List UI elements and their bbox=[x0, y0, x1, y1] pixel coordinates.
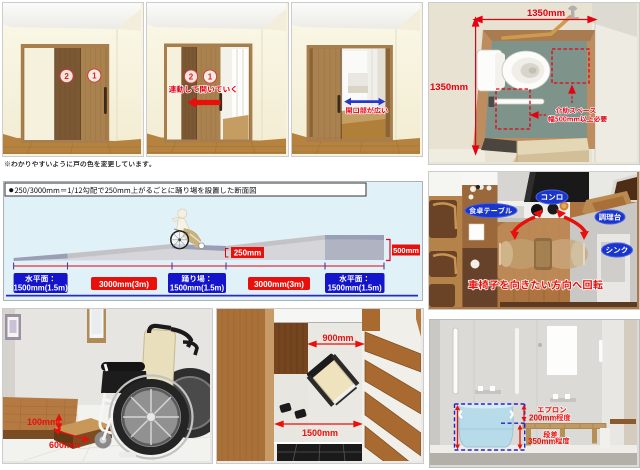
svg-text:2: 2 bbox=[64, 72, 69, 81]
svg-text:1: 1 bbox=[92, 71, 97, 80]
svg-text:1350mm: 1350mm bbox=[527, 8, 565, 19]
svg-text:250mm: 250mm bbox=[234, 249, 262, 258]
svg-text:600mm: 600mm bbox=[49, 440, 80, 450]
svg-text:100mm: 100mm bbox=[27, 417, 58, 427]
svg-text:3000mm(3m): 3000mm(3m) bbox=[254, 280, 304, 289]
svg-text:1500mm(1.5m): 1500mm(1.5m) bbox=[328, 284, 383, 293]
svg-text:350mm: 350mm bbox=[528, 437, 556, 446]
svg-text:200mm: 200mm bbox=[529, 414, 557, 423]
svg-text:1500mm(1.5m): 1500mm(1.5m) bbox=[14, 284, 69, 293]
svg-text:1500mm(1.5m): 1500mm(1.5m) bbox=[170, 284, 225, 293]
svg-text:2: 2 bbox=[189, 72, 194, 81]
svg-text:900mm: 900mm bbox=[322, 333, 353, 343]
svg-text:1350mm: 1350mm bbox=[430, 82, 468, 93]
svg-text:500mm: 500mm bbox=[393, 246, 419, 255]
svg-text:3000mm(3m): 3000mm(3m) bbox=[99, 280, 149, 289]
svg-text:1500mm: 1500mm bbox=[302, 428, 338, 438]
svg-text:1: 1 bbox=[208, 72, 213, 81]
